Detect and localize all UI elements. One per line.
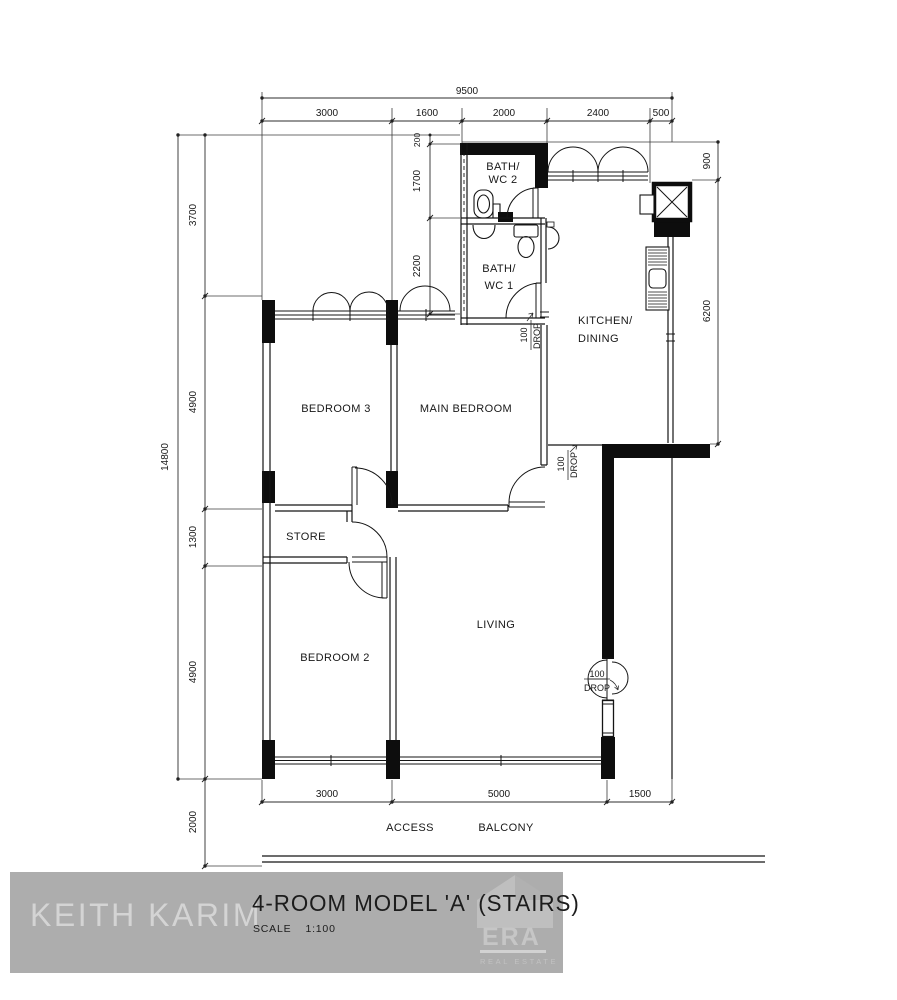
bath1-toilet-icon xyxy=(514,225,538,258)
dim-left-0: 3700 xyxy=(188,203,199,226)
dim-left-4: 2000 xyxy=(188,810,199,833)
dim-bath-0: 200 xyxy=(412,133,422,147)
dim-bottom-2: 1500 xyxy=(629,789,652,800)
dim-left-2: 1300 xyxy=(188,525,199,548)
floor-plan-drawing: 9500 3000 1600 2000 2400 500 14800 3700 … xyxy=(0,0,897,1000)
extension-lines xyxy=(178,92,718,866)
drop-annotations: 100 DROP 100 DROP 100 DROP xyxy=(519,323,610,693)
dim-top-3: 2400 xyxy=(587,108,610,119)
kitchen-sink-unit xyxy=(646,247,669,310)
label-kitchen-line2: DINING xyxy=(578,333,619,345)
label-bath2-line2: WC 2 xyxy=(488,174,517,186)
stove-unit xyxy=(640,195,654,214)
dim-left-3: 4900 xyxy=(188,660,199,683)
dim-left-1: 4900 xyxy=(188,390,199,413)
label-bath1-line2: WC 1 xyxy=(484,280,513,292)
drop2-word: DROP xyxy=(532,323,542,349)
dim-bottom-0: 3000 xyxy=(316,789,339,800)
label-bedroom3: BEDROOM 3 xyxy=(301,403,371,415)
label-balcony: BALCONY xyxy=(478,822,534,834)
bath2-toilet-icon xyxy=(474,190,500,218)
drop1-value: 100 xyxy=(556,456,566,471)
drop1-word: DROP xyxy=(569,452,579,478)
drop3-word: DROP xyxy=(584,683,610,693)
bedroom2-door xyxy=(349,562,387,598)
dim-top-2: 2000 xyxy=(493,108,516,119)
doors xyxy=(349,188,545,598)
dim-top-1: 1600 xyxy=(416,108,439,119)
label-access: ACCESS xyxy=(386,822,434,834)
main-bedroom-door xyxy=(509,467,545,507)
label-bedroom2: BEDROOM 2 xyxy=(300,652,370,664)
dim-top-0: 3000 xyxy=(316,108,339,119)
label-bath1-line1: BATH/ xyxy=(482,263,516,275)
window-casement-arcs xyxy=(313,147,648,311)
label-store: STORE xyxy=(286,531,326,543)
dimension-labels: 9500 3000 1600 2000 2400 500 14800 3700 … xyxy=(160,86,713,833)
bath1-basin-icon xyxy=(473,225,495,239)
room-labels: BATH/ WC 2 BATH/ WC 1 KITCHEN/ DINING BE… xyxy=(286,161,633,834)
dimension-lines xyxy=(178,98,718,866)
label-kitchen-line1: KITCHEN/ xyxy=(578,315,633,327)
dim-right-1: 6200 xyxy=(702,299,713,322)
dim-bath-1: 1700 xyxy=(412,169,423,192)
wall-basin-notch xyxy=(547,222,554,227)
dim-bath-2: 2200 xyxy=(412,254,423,277)
label-living: LIVING xyxy=(477,619,515,631)
dim-right-0: 900 xyxy=(702,152,713,169)
wall-basin-icon xyxy=(548,227,559,249)
dim-bottom-1: 5000 xyxy=(488,789,511,800)
dimension-ticks xyxy=(176,96,721,869)
drop3-value: 100 xyxy=(589,669,604,679)
dim-overall-width: 9500 xyxy=(456,86,479,97)
floor-plan-page: KEITH KARIM ERA REAL ESTATE 4-ROOM MODEL… xyxy=(0,0,897,1000)
dim-top-4: 500 xyxy=(653,108,670,119)
drop2-value: 100 xyxy=(519,327,529,342)
refuse-chute-icon xyxy=(654,184,690,220)
label-main-bedroom: MAIN BEDROOM xyxy=(420,403,512,415)
label-bath2-line1: BATH/ xyxy=(486,161,520,173)
dim-overall-height: 14800 xyxy=(160,443,171,471)
store-door xyxy=(352,522,387,562)
